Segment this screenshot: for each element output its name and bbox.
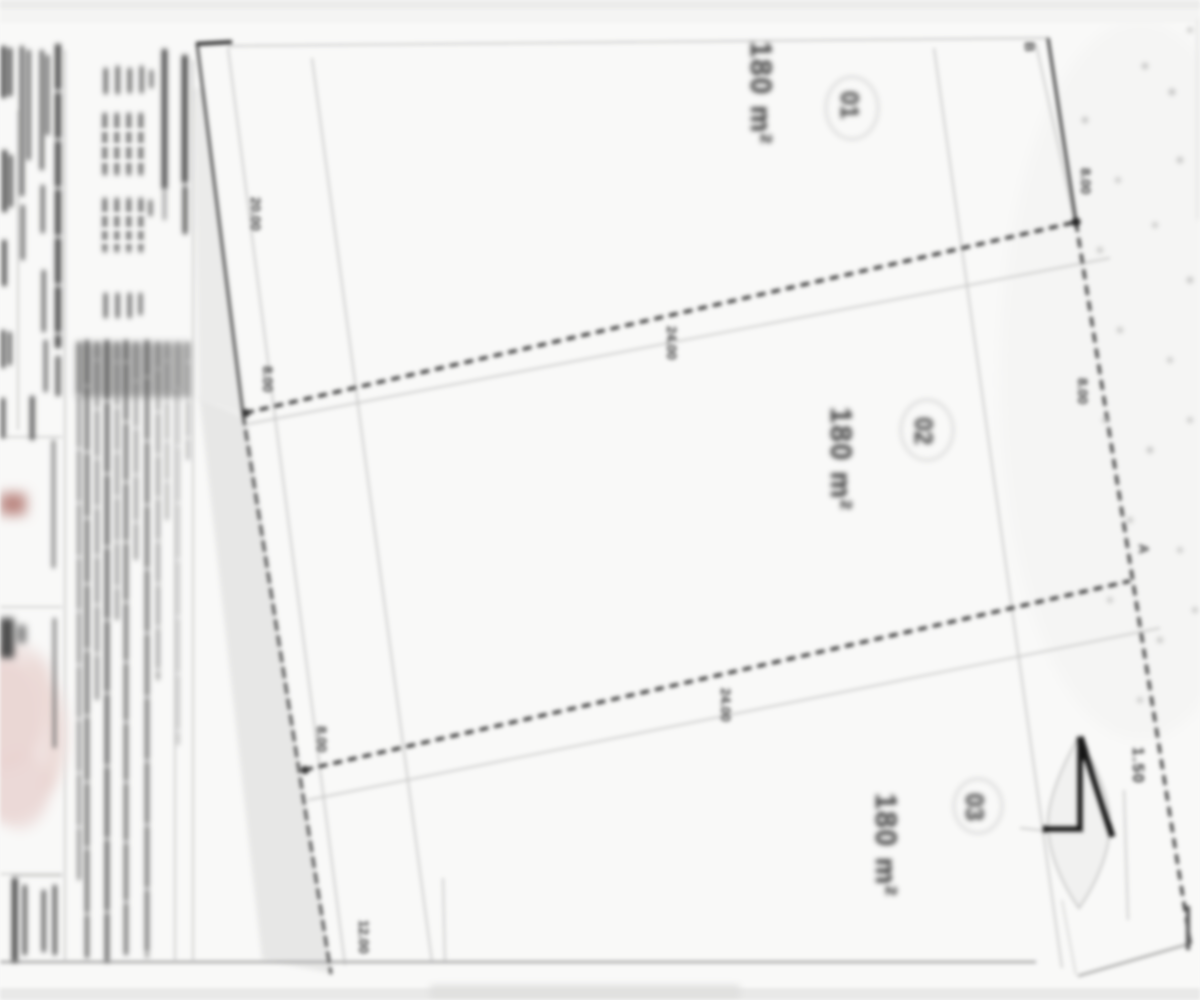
svg-text:03: 03 [960,793,988,821]
svg-text:8.00: 8.00 [314,726,329,752]
svg-text:180 m²: 180 m² [869,793,902,897]
svg-text:12.00: 12.00 [356,920,371,954]
svg-text:B: B [1022,42,1037,52]
svg-text:8.00: 8.00 [260,366,275,392]
svg-text:180 m²: 180 m² [744,41,777,145]
svg-text:180 m²: 180 m² [824,407,857,511]
svg-text:01: 01 [835,91,863,119]
svg-text:8.00: 8.00 [1078,168,1093,194]
svg-text:02: 02 [909,417,937,445]
svg-text:1.50: 1.50 [1129,747,1146,784]
svg-text:A: A [1136,544,1151,554]
svg-text:20.00: 20.00 [248,197,263,231]
svg-text:24.00: 24.00 [718,688,733,722]
svg-text:8.00: 8.00 [1075,378,1090,404]
svg-text:24.00: 24.00 [664,326,679,360]
